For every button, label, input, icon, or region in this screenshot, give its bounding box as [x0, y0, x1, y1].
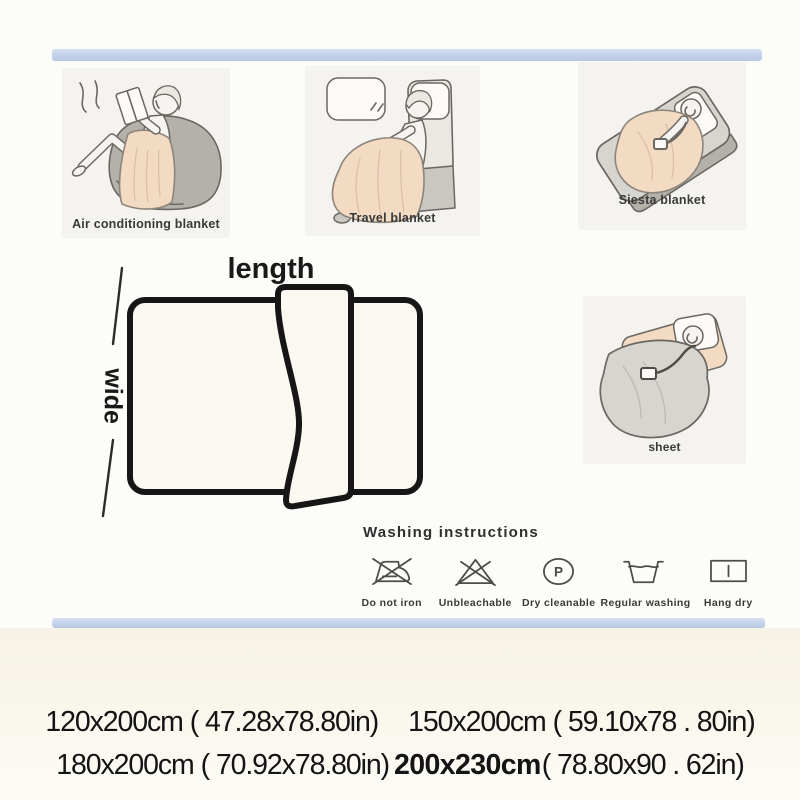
- size-inches: ( 78.80x90 . 62in): [542, 749, 744, 781]
- regular-washing-icon: [620, 554, 667, 589]
- controller: [654, 139, 667, 149]
- blanket-outline: [130, 300, 420, 492]
- sheet-blanket: [600, 340, 709, 437]
- hang-dry-icon: [705, 554, 752, 589]
- size-options: 120x200cm( 47.28x78.80in)150x200cm( 59.1…: [0, 701, 800, 787]
- panel-label: Siesta blanket: [578, 193, 746, 207]
- size-option: 180x200cm( 70.92x78.80in): [56, 749, 389, 781]
- washing-item-regular-washing: Regular washing: [601, 554, 687, 609]
- usage-panel-siesta: Siesta blanket: [578, 62, 746, 230]
- washing-item-unbleachable: Unbleachable: [434, 554, 518, 609]
- size-option-highlighted: 200x230cm( 78.80x90 . 62in): [394, 749, 744, 781]
- airplane-window-icon: [327, 78, 385, 120]
- washing-item-label: Dry cleanable: [517, 597, 601, 609]
- svg-text:P: P: [554, 564, 563, 579]
- size-diagram: length wide: [75, 250, 447, 524]
- washing-item-label: Do not iron: [350, 597, 434, 609]
- washing-section: Washing instructions Do not iron Unbleac…: [350, 524, 770, 609]
- size-line: 180x200cm( 70.92x78.80in)200x230cm( 78.8…: [0, 744, 800, 787]
- size-value: 180x200cm: [56, 749, 193, 781]
- steam-icon: [80, 81, 99, 112]
- size-inches: ( 70.92x78.80in): [201, 749, 389, 781]
- washing-item-label: Regular washing: [601, 597, 687, 609]
- air-conditioning-illustration: [62, 68, 230, 238]
- foot: [71, 164, 87, 178]
- size-line: 120x200cm( 47.28x78.80in)150x200cm( 59.1…: [0, 701, 800, 744]
- wide-dimension-line: [113, 268, 122, 344]
- divider-strip-top: [52, 49, 762, 61]
- controller: [641, 368, 656, 379]
- size-value: 120x200cm: [45, 706, 182, 738]
- do-not-iron-icon: [368, 554, 415, 589]
- washing-title: Washing instructions: [363, 524, 770, 541]
- divider-strip-bottom: [52, 618, 765, 628]
- size-inches: ( 59.10x78 . 80in): [553, 706, 755, 738]
- sheet-panel: sheet: [583, 296, 746, 464]
- washing-item-dry-cleanable: P Dry cleanable: [517, 554, 601, 609]
- usage-panel-air-conditioning: Air conditioning blanket: [62, 68, 230, 238]
- washing-icons-row: Do not iron Unbleachable P Dry cleanable…: [350, 554, 770, 609]
- sheet-illustration: [583, 296, 746, 464]
- washing-item-label: Hang dry: [687, 597, 771, 609]
- panel-label: Air conditioning blanket: [62, 217, 230, 231]
- size-option: 150x200cm( 59.10x78 . 80in): [408, 706, 754, 738]
- size-inches: ( 47.28x78.80in): [190, 706, 378, 738]
- wide-label: wide: [99, 367, 128, 424]
- panel-label: sheet: [583, 440, 746, 454]
- size-value: 200x230cm: [394, 749, 541, 781]
- size-option: 120x200cm( 47.28x78.80in): [45, 706, 378, 738]
- product-infographic-page: { "colors": { "strip_blue": "#c3d2ea", "…: [0, 0, 800, 800]
- panel-label: Travel blanket: [305, 211, 480, 225]
- length-label: length: [228, 253, 315, 285]
- washing-item-label: Unbleachable: [434, 597, 518, 609]
- washing-item-do-not-iron: Do not iron: [350, 554, 434, 609]
- unbleachable-icon: [452, 554, 499, 589]
- book-icon: [116, 87, 149, 125]
- washing-item-hang-dry: Hang dry: [687, 554, 771, 609]
- usage-panel-travel: Travel blanket: [305, 66, 480, 236]
- dry-cleanable-icon: P: [535, 554, 582, 589]
- size-value: 150x200cm: [408, 706, 545, 738]
- wide-dimension-line: [103, 440, 113, 516]
